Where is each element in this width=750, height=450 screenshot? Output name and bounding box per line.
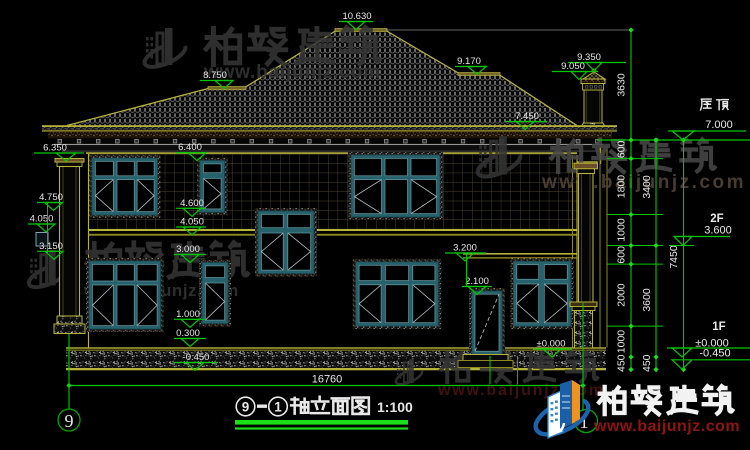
- svg-text:7.450: 7.450: [515, 111, 539, 122]
- svg-text:2.100: 2.100: [465, 276, 489, 287]
- svg-text:www.baijunjz.com: www.baijunjz.com: [593, 418, 740, 435]
- svg-text:3600: 3600: [641, 288, 653, 312]
- svg-text:450: 450: [641, 354, 653, 372]
- svg-text:2000: 2000: [616, 283, 628, 307]
- svg-text:1: 1: [274, 400, 282, 415]
- svg-text:-0.450: -0.450: [183, 352, 210, 363]
- svg-text:±0.000: ±0.000: [537, 339, 566, 350]
- svg-text:1F: 1F: [712, 321, 725, 333]
- svg-text:4.050: 4.050: [30, 214, 54, 225]
- svg-text:1800: 1800: [616, 175, 628, 199]
- svg-text:0.300: 0.300: [176, 328, 200, 339]
- svg-text:9.170: 9.170: [457, 56, 481, 67]
- svg-text:3.150: 3.150: [39, 241, 63, 252]
- svg-text:16760: 16760: [312, 374, 343, 386]
- svg-text:4.050: 4.050: [180, 217, 204, 228]
- svg-text:2F: 2F: [710, 213, 723, 225]
- svg-text:1:100: 1:100: [377, 399, 413, 415]
- svg-text:3.000: 3.000: [176, 244, 200, 255]
- svg-text:6.350: 6.350: [43, 143, 67, 154]
- svg-text:450: 450: [616, 354, 628, 372]
- svg-text:600: 600: [616, 246, 628, 264]
- svg-text:1000: 1000: [616, 330, 628, 354]
- svg-text:7.000: 7.000: [705, 119, 733, 131]
- svg-text:9: 9: [242, 400, 250, 415]
- svg-text:9: 9: [65, 411, 74, 431]
- svg-text:8.750: 8.750: [203, 70, 227, 81]
- svg-text:4.750: 4.750: [39, 192, 63, 203]
- svg-text:3.600: 3.600: [704, 225, 732, 237]
- svg-text:3630: 3630: [616, 73, 628, 97]
- svg-text:600: 600: [616, 140, 628, 158]
- svg-text:6.400: 6.400: [178, 142, 202, 153]
- svg-text:10.630: 10.630: [342, 11, 371, 22]
- svg-text:1.000: 1.000: [176, 309, 200, 320]
- svg-text:7450: 7450: [668, 245, 680, 269]
- svg-text:3.200: 3.200: [453, 243, 477, 254]
- svg-text:4.600: 4.600: [180, 198, 204, 209]
- svg-text:9.050: 9.050: [561, 61, 585, 72]
- svg-text:-0.450: -0.450: [699, 348, 730, 360]
- svg-text:www.baijunjz.com: www.baijunjz.com: [203, 62, 381, 83]
- svg-text:1000: 1000: [616, 218, 628, 242]
- svg-text:3400: 3400: [641, 175, 653, 199]
